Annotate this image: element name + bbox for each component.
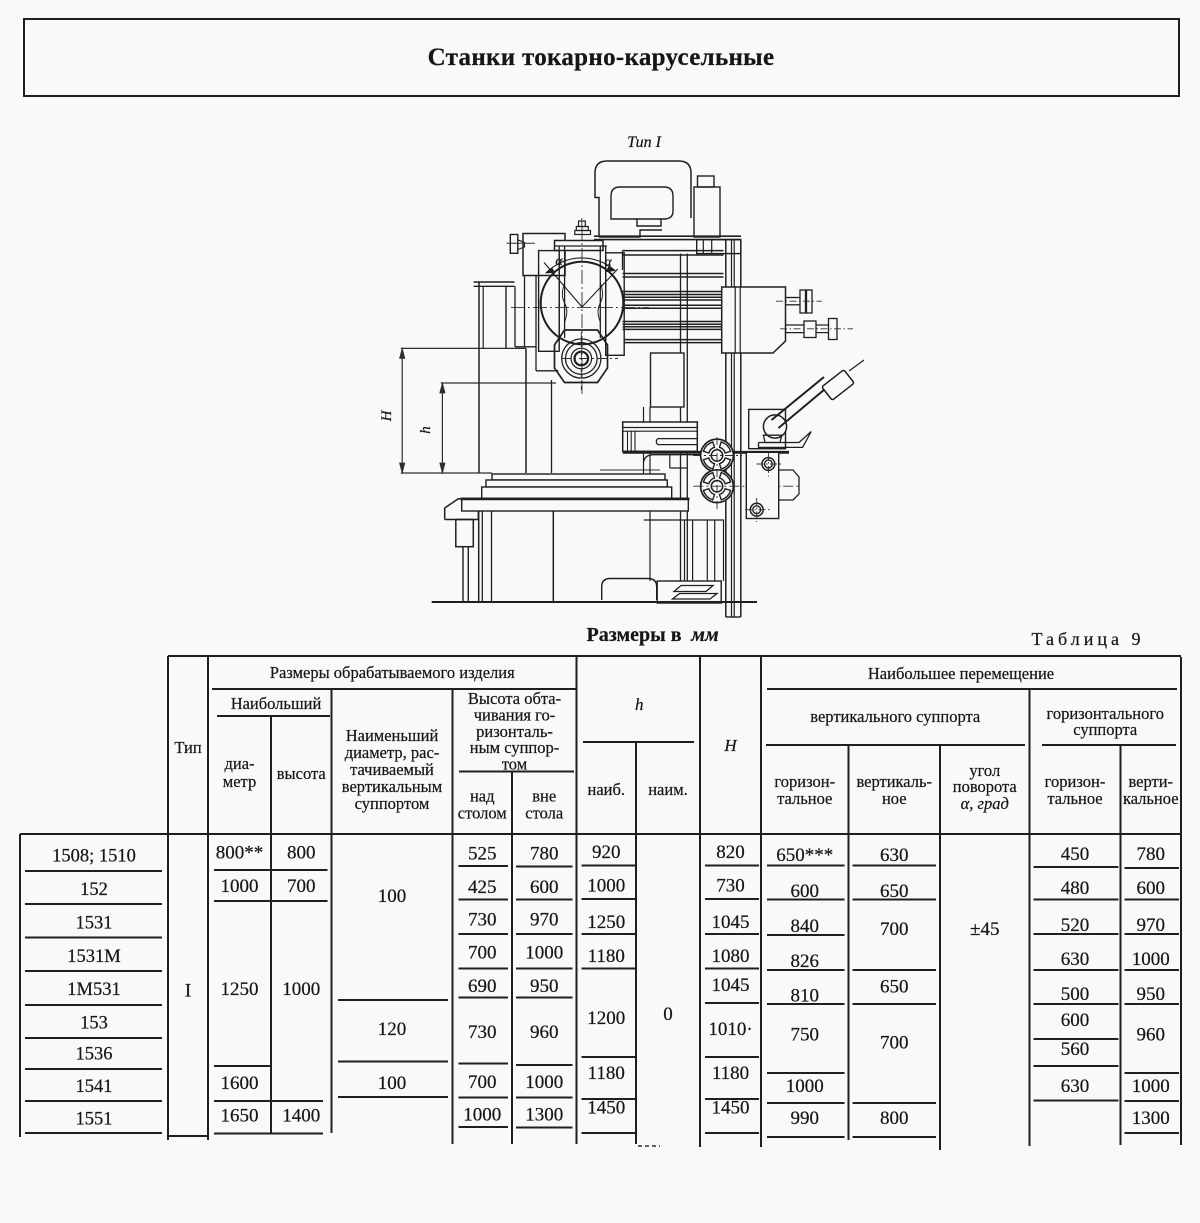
svg-text:высота: высота	[277, 764, 327, 783]
svg-text:1000: 1000	[786, 1076, 824, 1097]
svg-text:700: 700	[468, 943, 497, 964]
svg-text:950: 950	[530, 976, 559, 997]
svg-text:мм: мм	[690, 624, 719, 646]
svg-text:тальное: тальное	[777, 789, 832, 808]
svg-text:h: h	[635, 695, 644, 714]
svg-text:970: 970	[530, 910, 559, 931]
svg-text:152: 152	[80, 880, 108, 900]
svg-text:1010·: 1010·	[708, 1019, 752, 1040]
svg-text:1000: 1000	[463, 1105, 501, 1126]
svg-text:1000: 1000	[282, 979, 320, 1000]
svg-text:990: 990	[791, 1108, 820, 1129]
svg-text:1000: 1000	[1132, 949, 1170, 970]
svg-text:Таблица 9: Таблица 9	[1032, 629, 1145, 649]
svg-text:560: 560	[1061, 1039, 1090, 1060]
svg-text:960: 960	[530, 1022, 559, 1043]
svg-text:820: 820	[716, 842, 745, 863]
svg-text:950: 950	[1137, 984, 1166, 1005]
svg-text:1000: 1000	[525, 943, 563, 964]
svg-text:630: 630	[1061, 949, 1090, 970]
svg-text:750: 750	[791, 1025, 820, 1046]
svg-text:1080: 1080	[712, 946, 750, 967]
svg-text:425: 425	[468, 877, 497, 898]
svg-text:730: 730	[468, 1022, 497, 1043]
svg-text:800**: 800**	[216, 843, 264, 864]
svg-text:960: 960	[1137, 1025, 1166, 1046]
svg-text:Станки токарно-карусельные: Станки токарно-карусельные	[428, 44, 775, 71]
svg-text:800: 800	[287, 843, 316, 864]
svg-text:стола: стола	[525, 804, 564, 823]
svg-text:тальное: тальное	[1047, 789, 1102, 808]
svg-text:800: 800	[880, 1108, 909, 1129]
svg-text:520: 520	[1061, 915, 1090, 936]
svg-text:1045: 1045	[712, 912, 750, 933]
svg-text:Тип I: Тип I	[627, 134, 662, 151]
svg-text:630: 630	[880, 845, 909, 866]
svg-text:1531М: 1531М	[67, 947, 120, 967]
svg-text:600: 600	[1061, 1010, 1090, 1031]
svg-text:700: 700	[468, 1072, 497, 1093]
svg-text:1450: 1450	[712, 1098, 750, 1119]
svg-text:730: 730	[716, 876, 745, 897]
svg-text:0: 0	[663, 1004, 673, 1025]
svg-text:840: 840	[791, 916, 820, 937]
svg-text:1180: 1180	[588, 946, 625, 967]
svg-text:700: 700	[880, 919, 909, 940]
svg-text:1000: 1000	[525, 1072, 563, 1093]
svg-text:525: 525	[468, 844, 497, 865]
svg-text:Размеры обрабатываемого издели: Размеры обрабатываемого изделия	[270, 663, 515, 682]
svg-text:1531: 1531	[76, 914, 113, 934]
svg-text:1400: 1400	[282, 1106, 320, 1127]
svg-text:970: 970	[1137, 915, 1166, 936]
svg-text:вертикального суппорта: вертикального суппорта	[810, 707, 981, 726]
svg-text:1600: 1600	[221, 1073, 259, 1094]
svg-text:1300: 1300	[525, 1105, 563, 1126]
svg-text:Наибольший: Наибольший	[231, 694, 322, 713]
svg-text:наим.: наим.	[648, 780, 688, 799]
svg-text:α, град: α, град	[961, 794, 1009, 813]
svg-text:α: α	[604, 255, 612, 270]
svg-text:920: 920	[592, 842, 621, 863]
svg-text:том: том	[502, 755, 528, 774]
svg-text:650: 650	[880, 977, 909, 998]
svg-text:730: 730	[468, 910, 497, 931]
svg-text:780: 780	[1137, 844, 1166, 865]
svg-text:100: 100	[378, 1073, 407, 1094]
svg-text:780: 780	[530, 844, 559, 865]
svg-text:1М531: 1М531	[67, 980, 120, 1000]
svg-text:1000: 1000	[587, 876, 625, 897]
svg-text:1300: 1300	[1132, 1108, 1170, 1129]
svg-text:1551: 1551	[76, 1110, 113, 1130]
svg-text:Размеры в: Размеры в	[586, 624, 681, 646]
svg-text:650***: 650***	[776, 845, 833, 866]
svg-text:I: I	[185, 981, 191, 1002]
svg-text:1650: 1650	[221, 1106, 259, 1127]
svg-text:1450: 1450	[587, 1098, 625, 1119]
svg-text:α: α	[555, 254, 563, 269]
svg-text:столом: столом	[458, 804, 508, 823]
svg-text:суппорта: суппорта	[1073, 720, 1138, 739]
svg-text:153: 153	[80, 1014, 108, 1034]
svg-text:1000: 1000	[1132, 1076, 1170, 1097]
svg-text:700: 700	[287, 876, 316, 897]
svg-text:826: 826	[791, 951, 820, 972]
svg-text:1180: 1180	[588, 1063, 625, 1084]
svg-text:кальное: кальное	[1123, 789, 1179, 808]
svg-text:690: 690	[468, 976, 497, 997]
svg-text:1541: 1541	[76, 1077, 113, 1097]
svg-text:Наибольшее перемещение: Наибольшее перемещение	[868, 664, 1054, 683]
svg-text:метр: метр	[223, 772, 256, 791]
svg-text:диа-: диа-	[224, 754, 254, 773]
svg-text:1250: 1250	[587, 912, 625, 933]
svg-text:1250: 1250	[221, 979, 259, 1000]
svg-text:1180: 1180	[712, 1063, 749, 1084]
svg-text:600: 600	[1137, 878, 1166, 899]
svg-text:700: 700	[880, 1033, 909, 1054]
svg-text:1045: 1045	[712, 975, 750, 996]
svg-text:1508; 1510: 1508; 1510	[52, 847, 136, 867]
svg-text:500: 500	[1061, 984, 1090, 1005]
svg-text:1200: 1200	[587, 1008, 625, 1029]
svg-text:1000: 1000	[221, 876, 259, 897]
svg-text:h: h	[418, 426, 434, 434]
svg-text:ное: ное	[882, 789, 907, 808]
svg-text:Н: Н	[379, 409, 395, 422]
svg-text:суппортом: суппортом	[355, 794, 430, 813]
svg-text:1536: 1536	[76, 1045, 113, 1065]
svg-text:наиб.: наиб.	[587, 780, 625, 799]
svg-text:450: 450	[1061, 844, 1090, 865]
svg-text:Н: Н	[723, 736, 738, 755]
svg-text:120: 120	[378, 1019, 407, 1040]
svg-text:480: 480	[1061, 878, 1090, 899]
svg-text:Тип: Тип	[174, 738, 201, 757]
svg-text:600: 600	[530, 877, 559, 898]
svg-text:±45: ±45	[970, 919, 999, 940]
svg-text:100: 100	[378, 886, 407, 907]
svg-text:630: 630	[1061, 1076, 1090, 1097]
